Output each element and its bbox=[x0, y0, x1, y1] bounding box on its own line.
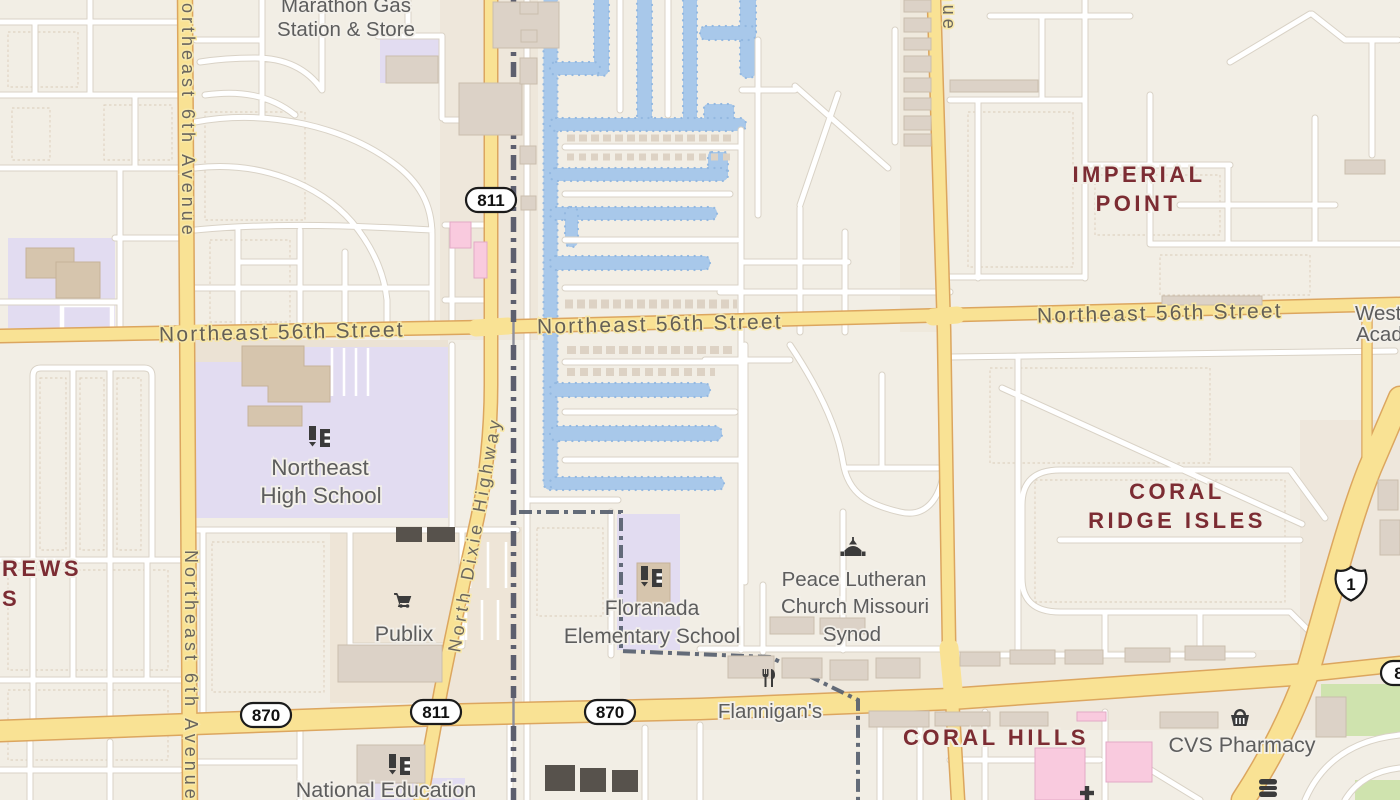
svg-text:CORAL HILLS: CORAL HILLS bbox=[903, 725, 1089, 750]
svg-text:870: 870 bbox=[596, 703, 624, 722]
svg-text:Northeast 6th Avenue: Northeast 6th Avenue bbox=[181, 550, 201, 800]
svg-text:811: 811 bbox=[422, 703, 449, 722]
svg-text:Northeast: Northeast bbox=[271, 455, 369, 480]
svg-text:Publix: Publix bbox=[375, 622, 434, 646]
svg-text:POINT: POINT bbox=[1096, 191, 1181, 216]
svg-text:Church Missouri: Church Missouri bbox=[781, 595, 929, 618]
svg-text:High School: High School bbox=[260, 483, 381, 508]
svg-text:National Education: National Education bbox=[296, 778, 476, 800]
svg-text:1: 1 bbox=[1346, 575, 1355, 594]
svg-text:Acad: Acad bbox=[1356, 323, 1400, 346]
svg-text:Flannigan's: Flannigan's bbox=[718, 700, 822, 723]
svg-text:REWS: REWS bbox=[2, 556, 82, 581]
svg-text:Station & Store: Station & Store bbox=[277, 18, 415, 41]
svg-text:Westm: Westm bbox=[1355, 302, 1400, 325]
svg-text:811: 811 bbox=[477, 191, 504, 210]
svg-text:Peace Lutheran: Peace Lutheran bbox=[782, 568, 927, 591]
svg-text:S: S bbox=[2, 586, 20, 611]
svg-text:870: 870 bbox=[252, 706, 280, 725]
svg-text:CORAL: CORAL bbox=[1129, 479, 1225, 504]
svg-text:Northeast 6th Avenue: Northeast 6th Avenue bbox=[178, 0, 198, 239]
svg-text:Marathon Gas: Marathon Gas bbox=[281, 0, 411, 17]
svg-text:8: 8 bbox=[1394, 664, 1400, 683]
svg-text:Floranada: Floranada bbox=[605, 597, 700, 620]
svg-text:RIDGE ISLES: RIDGE ISLES bbox=[1088, 508, 1266, 533]
svg-text:Synod: Synod bbox=[823, 623, 881, 646]
svg-text:Elementary School: Elementary School bbox=[564, 625, 740, 648]
svg-text:CVS Pharmacy: CVS Pharmacy bbox=[1169, 733, 1316, 757]
svg-text:IMPERIAL: IMPERIAL bbox=[1072, 162, 1205, 187]
svg-text:Avenue: Avenue bbox=[939, 0, 959, 33]
